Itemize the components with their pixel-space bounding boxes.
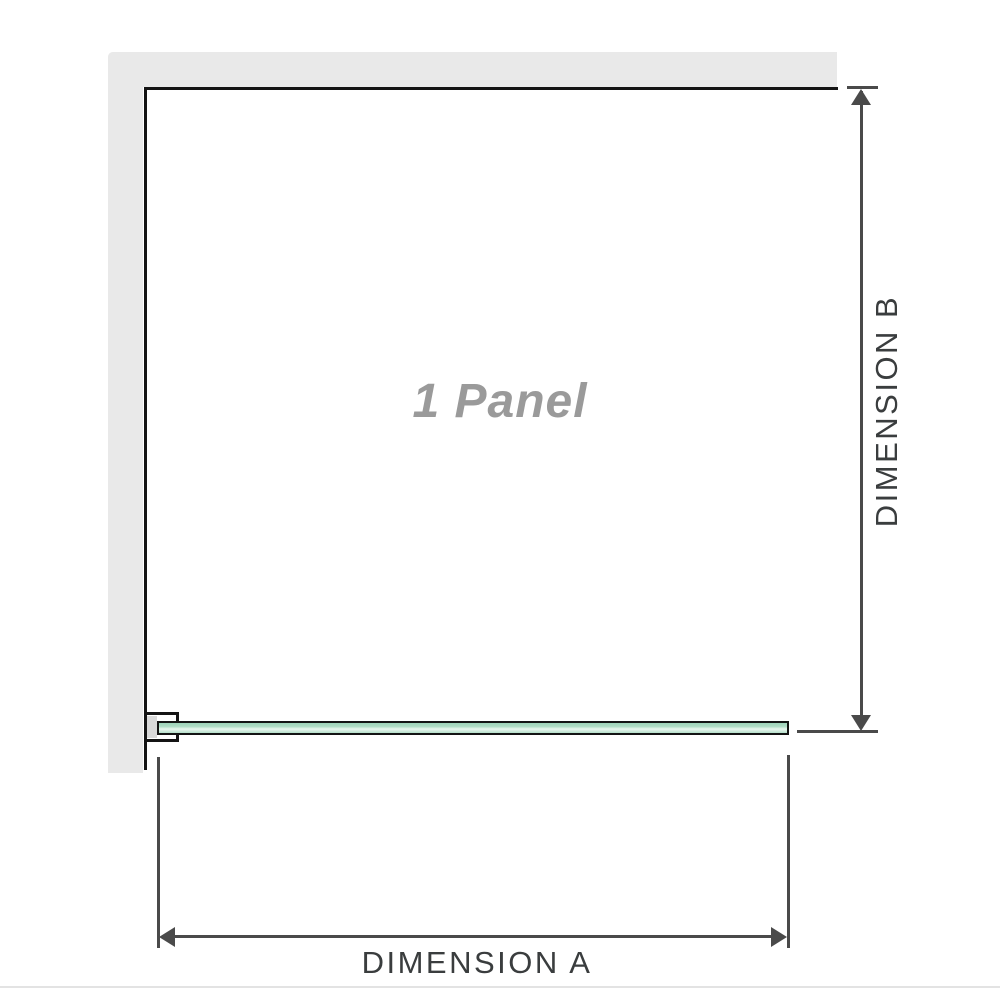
dim-a-label: DIMENSION A xyxy=(167,945,787,981)
glass-panel xyxy=(157,721,789,735)
wall-top xyxy=(108,52,837,87)
arrowhead-down-icon xyxy=(851,715,871,731)
shower-panel-diagram: 1 Panel DIMENSION B DIMENSION A xyxy=(0,0,1000,1000)
wall-left xyxy=(108,52,143,773)
enclosure-top-line xyxy=(144,87,838,90)
bottom-divider xyxy=(0,986,1000,988)
wall-bracket-pad xyxy=(147,716,157,738)
dim-b-label: DIMENSION B xyxy=(869,295,905,527)
dim-a-left-extension-line xyxy=(157,757,160,948)
panel-count-label: 1 Panel xyxy=(300,374,700,429)
arrowhead-up-icon xyxy=(851,89,871,105)
arrowhead-left-icon xyxy=(159,927,175,947)
dim-a-line xyxy=(162,935,784,938)
dim-b-line xyxy=(860,91,863,728)
arrowhead-right-icon xyxy=(771,927,787,947)
enclosure-left-line xyxy=(144,87,147,770)
dim-a-right-extension-line xyxy=(787,755,790,948)
